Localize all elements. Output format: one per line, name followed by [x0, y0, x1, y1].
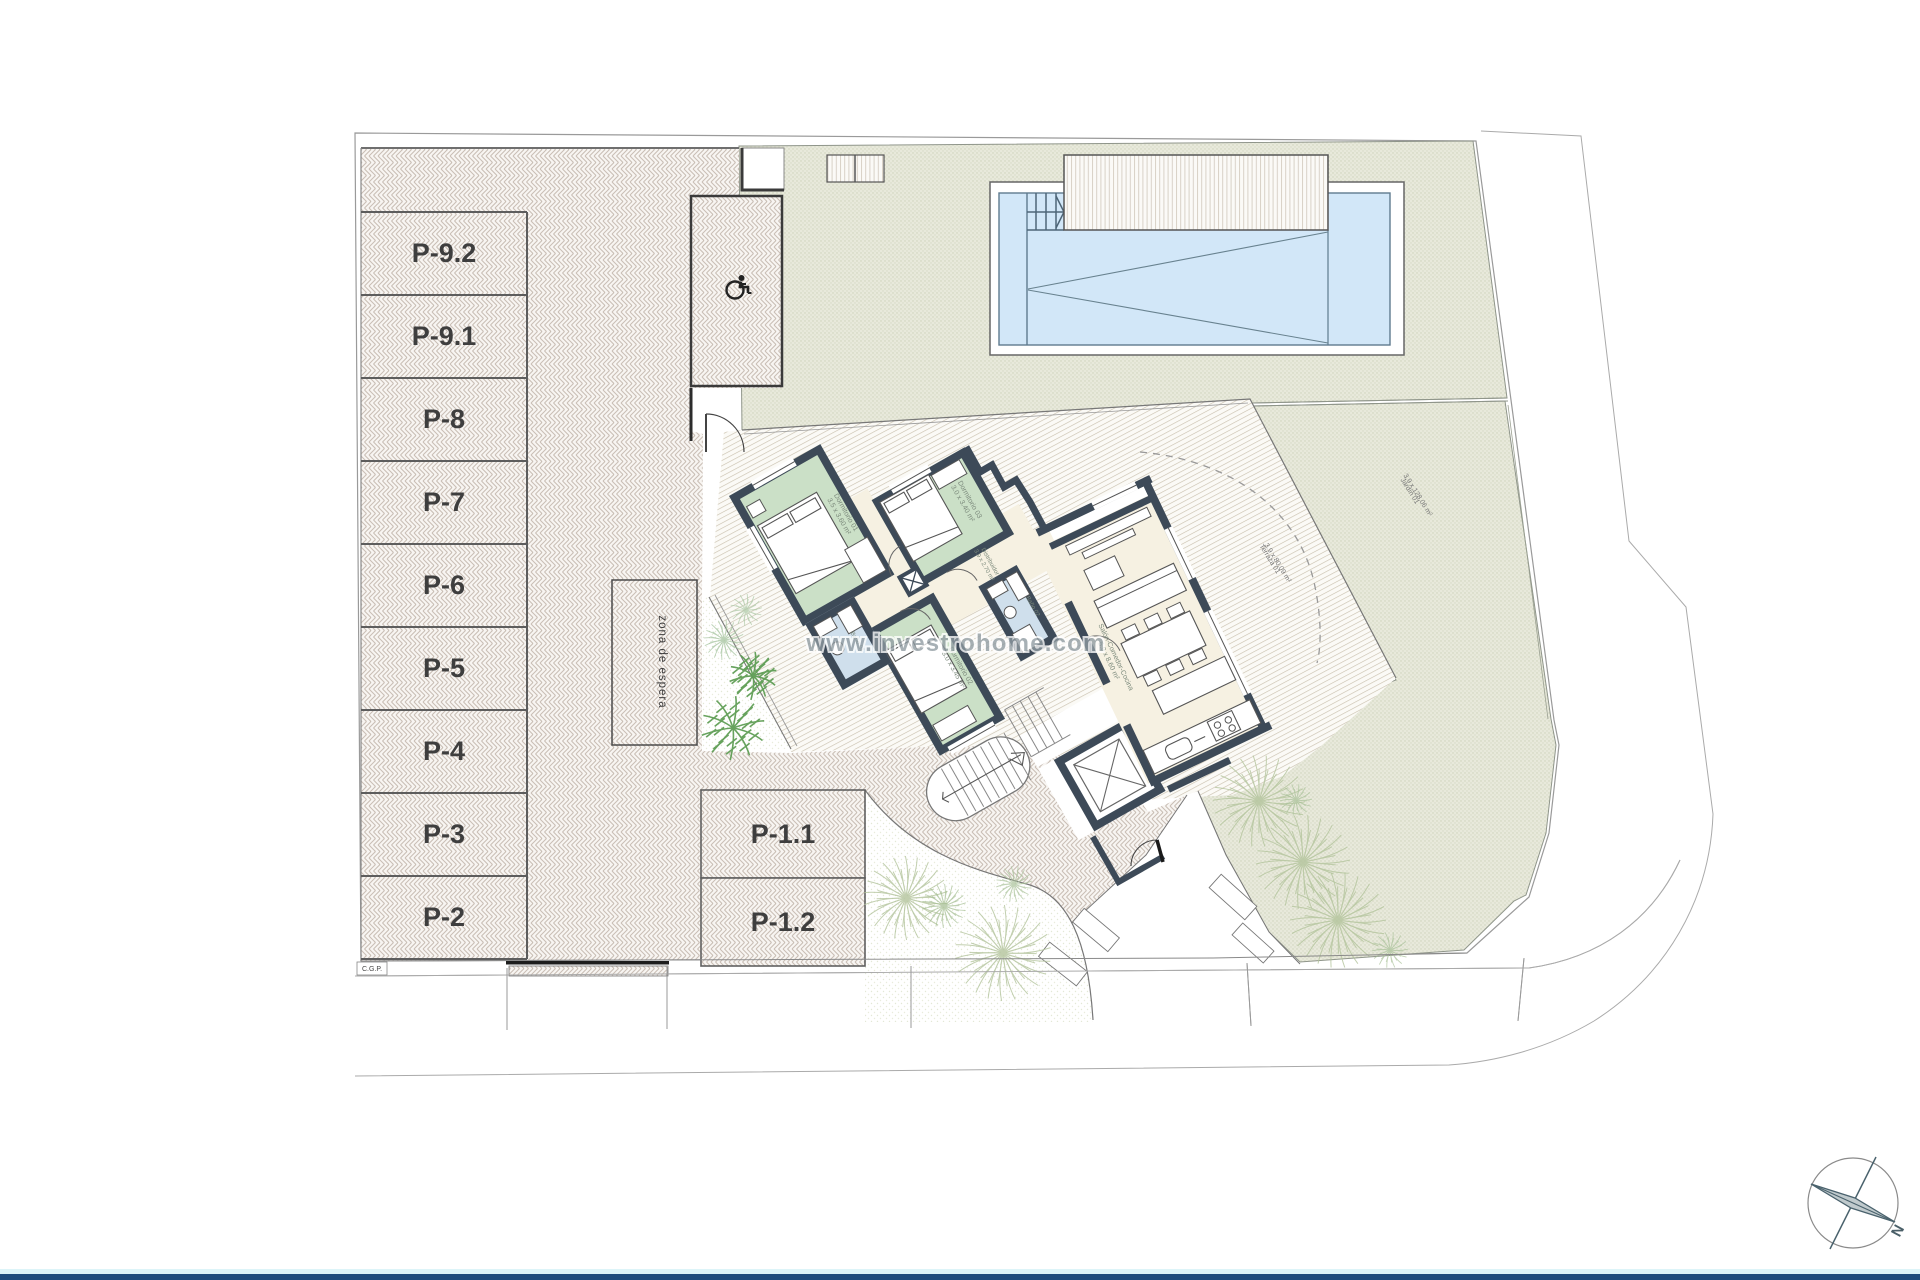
- svg-text:www.investrohome.com: www.investrohome.com: [805, 630, 1105, 657]
- svg-text:P-6: P-6: [423, 570, 465, 600]
- svg-text:C.G.P.: C.G.P.: [362, 966, 382, 973]
- svg-text:zona de espera: zona de espera: [656, 615, 668, 708]
- svg-text:P-3: P-3: [423, 819, 465, 849]
- svg-text:P-2: P-2: [423, 902, 465, 932]
- svg-text:P-1.1: P-1.1: [751, 819, 816, 849]
- svg-text:P-7: P-7: [423, 487, 465, 517]
- svg-text:P-8: P-8: [423, 404, 465, 434]
- svg-text:P-9.1: P-9.1: [412, 321, 477, 351]
- svg-text:P-1.2: P-1.2: [751, 907, 816, 937]
- svg-text:P-5: P-5: [423, 653, 465, 683]
- svg-text:P-4: P-4: [423, 736, 465, 766]
- svg-text:P-9.2: P-9.2: [412, 238, 477, 268]
